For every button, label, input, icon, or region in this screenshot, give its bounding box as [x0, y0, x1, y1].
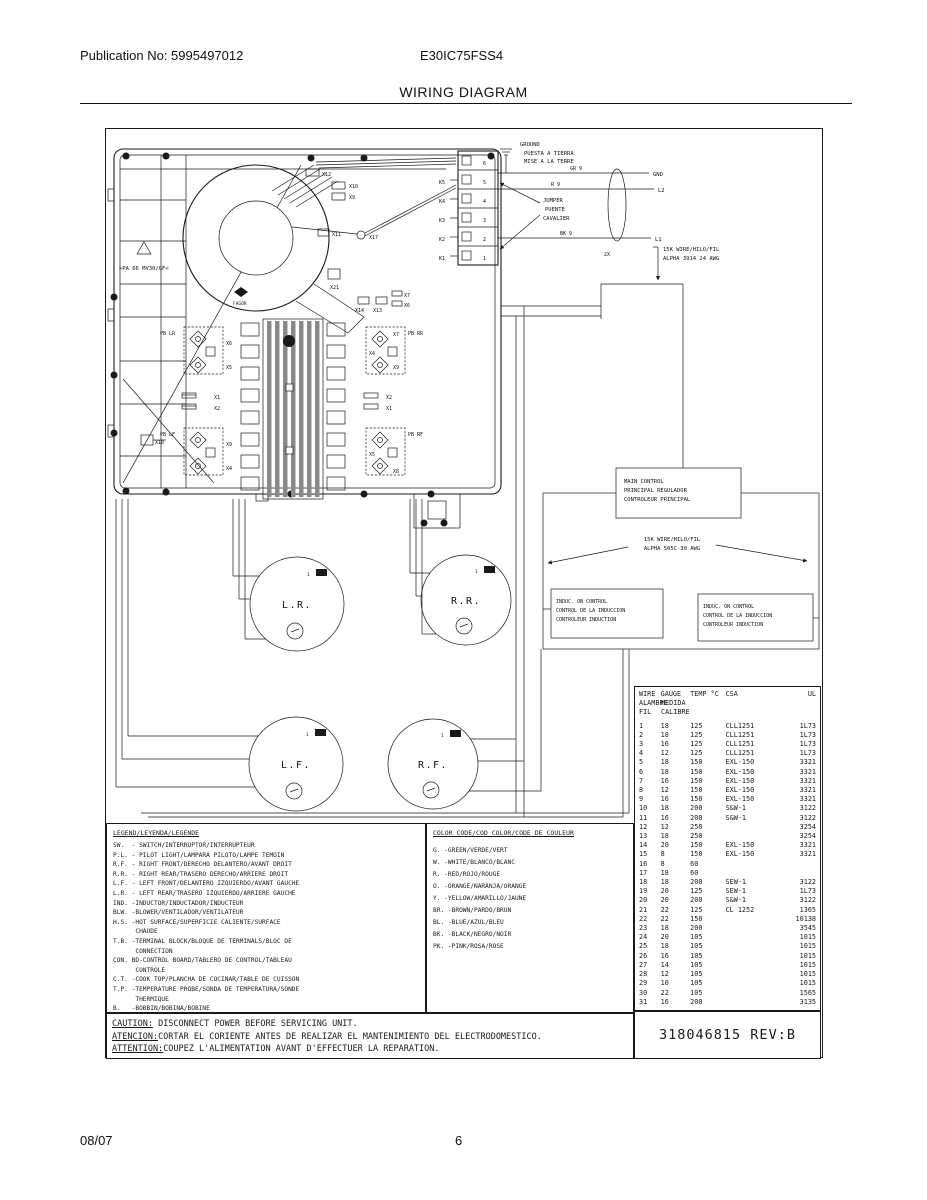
- x9-label: X9: [349, 195, 355, 201]
- cell-csa: [726, 924, 777, 933]
- burner-rr-mark: 1: [475, 569, 478, 575]
- wire-note-top-1: 15K WIRE/HILO/FIL: [663, 247, 720, 253]
- col-temp: TEMP °C: [690, 690, 725, 699]
- color-code-title: COLOR CODE/COD COLOR/CODE DE COULEUR: [433, 829, 627, 837]
- cell-ul: 3545: [777, 924, 816, 933]
- cell-ul: 3122: [777, 896, 816, 905]
- wire-note-mid-2: ALPHA 505C-30 AWG: [644, 546, 700, 552]
- table-row: 16 8 60: [639, 860, 816, 869]
- cell-temp: 125: [690, 722, 725, 731]
- pb-rf-label: PB RF: [408, 432, 423, 438]
- cell-gauge: 18: [661, 924, 691, 933]
- cell-temp: 150: [690, 795, 725, 804]
- cell-temp: 250: [690, 823, 725, 832]
- main-control-line1: MAIN CONTROL: [624, 479, 664, 485]
- cell-csa: S&W-1: [726, 896, 777, 905]
- terminal-2: 2: [483, 237, 486, 243]
- table-row: 19 20 125 SEW-1 1L73: [639, 887, 816, 896]
- terminal-block: [450, 151, 498, 265]
- table-row: 24 20 105 1015: [639, 933, 816, 942]
- cell-wire: 5: [639, 758, 661, 767]
- cell-csa: EXL-150: [726, 768, 777, 777]
- cell-ul: 1015: [777, 979, 816, 988]
- col-gauge-es: MEDIDA: [661, 699, 691, 708]
- caution-box: CAUTION: DISCONNECT POWER BEFORE SERVICI…: [106, 1013, 634, 1059]
- cell-gauge: 16: [661, 740, 691, 749]
- cell-gauge: 16: [661, 814, 691, 823]
- cell-csa: [726, 823, 777, 832]
- x9-pb-label: X9: [226, 442, 232, 448]
- main-control-line2: PRINCIPAL REGULADOR: [624, 488, 688, 494]
- induc-right-line3: CONTROLEUR INDUCTION: [703, 622, 763, 628]
- table-row: 26 16 105 1015: [639, 952, 816, 961]
- cell-gauge: 18: [661, 768, 691, 777]
- l1-label: L1: [655, 237, 662, 243]
- legend-line: CONTROLE: [113, 966, 419, 976]
- induc-right-line2: CONTROL DE LA INDUCCION: [703, 613, 772, 619]
- cell-gauge: 12: [661, 823, 691, 832]
- cell-csa: EXL-150: [726, 786, 777, 795]
- cell-ul: 1015: [777, 942, 816, 951]
- cell-wire: 9: [639, 795, 661, 804]
- cell-ul: 3321: [777, 850, 816, 859]
- cell-wire: 3: [639, 740, 661, 749]
- legend-line: IND. -INDUCTOR/INDUCTADOR/INDUCTEUR: [113, 899, 419, 909]
- legend-line: P.L. - PILOT LIGHT/LAMPARA PILOTO/LAMPE …: [113, 851, 419, 861]
- cell-wire: 18: [639, 878, 661, 887]
- cell-ul: 1015: [777, 970, 816, 979]
- cell-wire: 25: [639, 942, 661, 951]
- k5-label: K5: [439, 180, 445, 186]
- burner-lr-mark: 1: [307, 572, 310, 578]
- terminal-4: 4: [483, 199, 486, 205]
- k1-label: K1: [439, 256, 445, 262]
- table-body: 1 18 125 CLL1251 1L73 2 18 125 CLL1251 1…: [639, 722, 816, 1007]
- diagram-frame: >PA 66 MV30/GF< FAGOR: [105, 128, 823, 1058]
- table-row: 12 12 250 3254: [639, 823, 816, 832]
- cell-temp: 105: [690, 979, 725, 988]
- col-wire-es: ALAMBRE: [639, 699, 661, 708]
- cell-gauge: 20: [661, 887, 691, 896]
- cell-csa: [726, 970, 777, 979]
- cell-ul: 10138: [777, 915, 816, 924]
- cell-gauge: 8: [661, 860, 691, 869]
- x2-right-label: X2: [386, 395, 392, 401]
- caution-label: CAUTION:: [112, 1019, 153, 1029]
- cell-wire: 24: [639, 933, 661, 942]
- x5-pb2-label: X5: [369, 452, 375, 458]
- wire-note-top: 15K WIRE/HILO/FIL ALPHA 3914 24 AWG: [653, 247, 720, 280]
- induc-left-line2: CONTROL DE LA INDUCCION: [556, 608, 625, 614]
- cell-csa: [726, 832, 777, 841]
- cell-csa: S&W-1: [726, 814, 777, 823]
- table-row: 23 18 200 3545: [639, 924, 816, 933]
- cell-temp: 125: [690, 749, 725, 758]
- color-code-box: COLOR CODE/COD COLOR/CODE DE COULEUR G. …: [426, 823, 634, 1013]
- cell-gauge: 18: [661, 758, 691, 767]
- table-row: 10 18 200 S&W-1 3122: [639, 804, 816, 813]
- cell-ul: 1015: [777, 961, 816, 970]
- cell-gauge: 10: [661, 979, 691, 988]
- legend-line: THERMIQUE: [113, 995, 419, 1005]
- cell-gauge: 20: [661, 896, 691, 905]
- ground-label-es: PUESTA A TIERRA: [524, 151, 574, 157]
- table-row: 17 18 60: [639, 869, 816, 878]
- x2-left-label: X2: [214, 406, 220, 412]
- table-row: 2 18 125 CLL1251 1L73: [639, 731, 816, 740]
- x7-pb-label: X7: [393, 332, 399, 338]
- cell-ul: 3321: [777, 777, 816, 786]
- table-header-row-2: ALAMBRE MEDIDA: [639, 699, 816, 708]
- cell-ul: [777, 869, 816, 878]
- induction-control-right-box: INDUC. ON CONTROL CONTROL DE LA INDUCCIO…: [698, 594, 813, 641]
- cell-ul: 1L73: [777, 722, 816, 731]
- cell-ul: [777, 860, 816, 869]
- model-number: E30IC75FSS4: [420, 48, 503, 63]
- cell-ul: 3321: [777, 795, 816, 804]
- cell-gauge: 16: [661, 998, 691, 1007]
- title-rule: [80, 103, 852, 104]
- x21-label: X21: [330, 285, 339, 291]
- cell-temp: 105: [690, 942, 725, 951]
- recycle-triangle-icon: [137, 242, 151, 254]
- cell-csa: [726, 933, 777, 942]
- color-code-line: R. -RED/ROJO/ROUGE: [433, 869, 627, 881]
- k4-label: K4: [439, 199, 445, 205]
- cooktop-assembly: >PA 66 MV30/GF< FAGOR: [108, 149, 501, 528]
- caution-line: ATENCION:CORTAR EL CORIENTE ANTES DE REA…: [112, 1031, 628, 1044]
- table-row: 29 10 105 1015: [639, 979, 816, 988]
- x13-label: X13: [373, 308, 382, 314]
- ground-label-fr: MISE A LA TERRE: [524, 159, 574, 165]
- caution-line: ATTENTION:COUPEZ L'ALIMENTATION AVANT D'…: [112, 1043, 628, 1056]
- main-control-box: MAIN CONTROL PRINCIPAL REGULADOR CONTROL…: [616, 468, 741, 518]
- cell-temp: 150: [690, 786, 725, 795]
- table-row: 21 22 125 CL 1252 1365: [639, 906, 816, 915]
- col-ul: UL: [777, 690, 816, 699]
- cell-csa: [726, 961, 777, 970]
- caution-lines: CAUTION: DISCONNECT POWER BEFORE SERVICI…: [112, 1018, 628, 1056]
- cell-wire: 4: [639, 749, 661, 758]
- x6-pb-label: X6: [226, 341, 232, 347]
- cell-ul: 3321: [777, 841, 816, 850]
- pb-rr-label: PB RR: [408, 331, 424, 337]
- col-gauge: GAUGE: [661, 690, 691, 699]
- x10-label: X10: [349, 184, 358, 190]
- burner-lf-label: L.F.: [281, 760, 311, 771]
- cell-ul: 3321: [777, 758, 816, 767]
- color-code-line: W. -WHITE/BLANCO/BLANC: [433, 857, 627, 869]
- cell-csa: SEW-1: [726, 887, 777, 896]
- cell-temp: 200: [690, 924, 725, 933]
- cell-wire: 26: [639, 952, 661, 961]
- x8-pb-label: X8: [393, 469, 399, 475]
- cell-csa: EXL-150: [726, 841, 777, 850]
- cell-ul: 1L73: [777, 749, 816, 758]
- cell-wire: 11: [639, 814, 661, 823]
- table-row: 25 18 105 1015: [639, 942, 816, 951]
- x12-label: X12: [322, 172, 331, 178]
- burner-right-rear: R.R. 1: [421, 555, 511, 645]
- cell-wire: 12: [639, 823, 661, 832]
- cell-csa: CLL1251: [726, 749, 777, 758]
- cell-temp: 150: [690, 850, 725, 859]
- color-code-line: Y. -YELLOW/AMARILLO/JAUNE: [433, 893, 627, 905]
- table-row: 22 22 150 10138: [639, 915, 816, 924]
- burner-lf-mark: 1: [306, 732, 309, 738]
- footer-date: 08/07: [80, 1133, 113, 1148]
- cell-temp: 125: [690, 906, 725, 915]
- cell-temp: 150: [690, 777, 725, 786]
- cell-wire: 8: [639, 786, 661, 795]
- cell-temp: 125: [690, 740, 725, 749]
- table-row: 6 18 150 EXL-150 3321: [639, 768, 816, 777]
- cell-temp: 200: [690, 814, 725, 823]
- x5-pb-label: X5: [226, 365, 232, 371]
- cell-wire: 15: [639, 850, 661, 859]
- ground-label-en: GROUND: [520, 142, 540, 148]
- k3-label: K3: [439, 218, 445, 224]
- x10-left-label: X10: [155, 440, 164, 446]
- table-row: 31 16 200 3135: [639, 998, 816, 1007]
- caution-label: ATTENTION:: [112, 1044, 163, 1054]
- terminal-3: 3: [483, 218, 486, 224]
- cell-gauge: 18: [661, 731, 691, 740]
- main-control-line3: CONTROLEUR PRINCIPAL: [624, 497, 691, 503]
- cell-gauge: 20: [661, 933, 691, 942]
- cell-csa: CLL1251: [726, 731, 777, 740]
- table-row: 9 16 150 EXL-150 3321: [639, 795, 816, 804]
- cell-wire: 17: [639, 869, 661, 878]
- cell-gauge: 20: [661, 841, 691, 850]
- col-wire-fr: FIL: [639, 708, 661, 717]
- table-row: 28 12 105 1015: [639, 970, 816, 979]
- cell-gauge: 18: [661, 942, 691, 951]
- pb-lf-label: PB LF: [160, 432, 175, 438]
- cell-gauge: 12: [661, 970, 691, 979]
- cell-csa: EXL-150: [726, 850, 777, 859]
- cell-ul: 3122: [777, 804, 816, 813]
- color-code-lines: G. -GREEN/VERDE/VERTW. -WHITE/BLANCO/BLA…: [433, 845, 627, 953]
- cell-temp: 150: [690, 768, 725, 777]
- cell-ul: 1365: [777, 906, 816, 915]
- induc-right-line1: INDUC. ON CONTROL: [703, 604, 754, 610]
- cell-gauge: 18: [661, 878, 691, 887]
- cell-gauge: 18: [661, 832, 691, 841]
- cell-csa: CL 1252: [726, 906, 777, 915]
- x9-pb2-label: X9: [393, 365, 399, 371]
- caution-label: ATENCION:: [112, 1032, 158, 1042]
- legend-line: SW. - SWITCH/INTERRUPTOR/INTERRUPTEUR: [113, 841, 419, 851]
- cell-ul: 3321: [777, 768, 816, 777]
- caution-line: CAUTION: DISCONNECT POWER BEFORE SERVICI…: [112, 1018, 628, 1031]
- cell-temp: 150: [690, 915, 725, 924]
- page-title: WIRING DIAGRAM: [0, 84, 927, 100]
- legend-line: R.R. - RIGHT REAR/TRASERO DERECHO/ARRIER…: [113, 870, 419, 880]
- color-code-line: BK. -BLACK/NEGRO/NOIR: [433, 929, 627, 941]
- table-row: 3 16 125 CLL1251 1L73: [639, 740, 816, 749]
- legend-box: LEGEND/LEYENDA/LEGENDE SW. - SWITCH/INTE…: [106, 823, 426, 1013]
- induc-left-line3: CONTROLEUR INDUCTION: [556, 617, 616, 623]
- brand-label: FAGOR: [233, 301, 247, 307]
- part-number-box: 318046815 REV:B: [634, 1011, 821, 1059]
- caution-text: DISCONNECT POWER BEFORE SERVICING UNIT.: [153, 1019, 358, 1029]
- cell-wire: 6: [639, 768, 661, 777]
- color-code-line: G. -GREEN/VERDE/VERT: [433, 845, 627, 857]
- burner-left-rear: L.R. 1: [250, 557, 344, 651]
- manual-page: Publication No: 5995497012 E30IC75FSS4 W…: [0, 0, 927, 1200]
- cell-temp: 60: [690, 869, 725, 878]
- cell-gauge: 18: [661, 722, 691, 731]
- legend-lines: SW. - SWITCH/INTERRUPTOR/INTERRUPTEURP.L…: [113, 841, 419, 1014]
- heatsink: [263, 319, 323, 499]
- cell-wire: 16: [639, 860, 661, 869]
- cell-gauge: 22: [661, 989, 691, 998]
- table-row: 13 18 250 3254: [639, 832, 816, 841]
- table-header-row-1: WIRE GAUGE TEMP °C CSA UL: [639, 690, 816, 699]
- cell-gauge: 22: [661, 915, 691, 924]
- burner-right-front: R.F. 1: [388, 719, 478, 809]
- blower-fan: [183, 165, 364, 333]
- table-row: 11 16 200 S&W-1 3122: [639, 814, 816, 823]
- cell-csa: EXL-150: [726, 758, 777, 767]
- cell-ul: 3254: [777, 823, 816, 832]
- col-gauge-fr: CALIBRE: [661, 708, 691, 717]
- legend-line: T.P. -TEMPERATURE PROBE/SONDA DE TEMPERA…: [113, 985, 419, 995]
- x11-label: X11: [332, 232, 341, 238]
- terminal-1: 1: [483, 256, 486, 262]
- cell-temp: 105: [690, 970, 725, 979]
- cell-csa: [726, 989, 777, 998]
- table-row: 18 18 200 SEW-1 3122: [639, 878, 816, 887]
- wire-gr9-label: GR 9: [570, 166, 582, 172]
- caution-text: COUPEZ L'ALIMENTATION AVANT D'EFFECTUER …: [163, 1044, 439, 1054]
- cell-ul: 3321: [777, 786, 816, 795]
- gnd-label: GND: [653, 172, 663, 178]
- cell-ul: 3254: [777, 832, 816, 841]
- cell-wire: 28: [639, 970, 661, 979]
- cell-wire: 23: [639, 924, 661, 933]
- burner-left-front: L.F. 1: [249, 717, 343, 811]
- x4-pb2-label: X4: [369, 351, 375, 357]
- publication-number: Publication No: 5995497012: [80, 48, 243, 63]
- l2-label: L2: [658, 188, 665, 194]
- cell-gauge: 16: [661, 777, 691, 786]
- table-row: 7 16 150 EXL-150 3321: [639, 777, 816, 786]
- x4-pb-label: X4: [226, 466, 232, 472]
- terminal-5: 5: [483, 180, 486, 186]
- cell-wire: 20: [639, 896, 661, 905]
- table-header-row-3: FIL CALIBRE: [639, 708, 816, 717]
- part-number: 318046815 REV:B: [659, 1027, 796, 1043]
- terminal-6: 6: [483, 161, 486, 167]
- cell-ul: 1015: [777, 952, 816, 961]
- cell-temp: 125: [690, 731, 725, 740]
- footer-page-number: 6: [455, 1133, 462, 1148]
- induction-control-left-box: INDUC. ON CONTROL CONTROL DE LA INDUCCIO…: [551, 589, 663, 638]
- col-wire: WIRE: [639, 690, 661, 699]
- cell-wire: 13: [639, 832, 661, 841]
- cell-ul: 3135: [777, 998, 816, 1007]
- cell-temp: 105: [690, 961, 725, 970]
- material-label: >PA 66 MV30/GF<: [119, 266, 169, 272]
- wire-note-top-2: ALPHA 3914 24 AWG: [663, 256, 719, 262]
- legend-line: L.R. - LEFT REAR/TRASERO IZQUIERDO/ARRIE…: [113, 889, 419, 899]
- cell-temp: 200: [690, 804, 725, 813]
- jumper-label-fr: CAVALIER: [543, 216, 570, 222]
- cell-csa: EXL-150: [726, 795, 777, 804]
- cell-csa: CLL1251: [726, 740, 777, 749]
- cell-ul: 1L73: [777, 887, 816, 896]
- color-code-line: O. -ORANGE/NARANJA/ORANGE: [433, 881, 627, 893]
- x1-left-label: X1: [214, 395, 220, 401]
- cell-gauge: 12: [661, 749, 691, 758]
- color-code-line: PK. -PINK/ROSA/ROSE: [433, 941, 627, 953]
- burner-rr-label: R.R.: [451, 596, 481, 607]
- jumper-label-es: PUENTE: [545, 207, 565, 213]
- cell-temp: 200: [690, 878, 725, 887]
- cell-wire: 29: [639, 979, 661, 988]
- cell-ul: 1L73: [777, 740, 816, 749]
- cell-wire: 22: [639, 915, 661, 924]
- legend-line: R.F. - RIGHT FRONT/DERECHO DELANTERO/AVA…: [113, 860, 419, 870]
- cell-wire: 21: [639, 906, 661, 915]
- wire-gauge-table: WIRE GAUGE TEMP °C CSA UL ALAMBRE MEDIDA…: [634, 686, 821, 1011]
- table-row: 5 18 150 EXL-150 3321: [639, 758, 816, 767]
- jumper-label-en: JUMPER: [543, 198, 564, 204]
- x17-label: X17: [369, 235, 378, 241]
- legend-line: CHAUDE: [113, 927, 419, 937]
- legend-line: BLW. -BLOWER/VENTILADOR/VENTILATEUR: [113, 908, 419, 918]
- table-row: 8 12 150 EXL-150 3321: [639, 786, 816, 795]
- cell-temp: 200: [690, 896, 725, 905]
- cell-gauge: 8: [661, 850, 691, 859]
- color-code-line: BL. -BLUE/AZUL/BLEU: [433, 917, 627, 929]
- cell-wire: 31: [639, 998, 661, 1007]
- table-row: 20 20 200 S&W-1 3122: [639, 896, 816, 905]
- legend-line: H.S. -HOT SURFACE/SUPERFICIE CALIENTE/SU…: [113, 918, 419, 928]
- cell-ul: 1015: [777, 933, 816, 942]
- brand-logo-icon: [234, 287, 248, 297]
- x6-label: X6: [404, 303, 410, 309]
- cell-temp: 150: [690, 841, 725, 850]
- cell-gauge: 14: [661, 961, 691, 970]
- burner-rf-label: R.F.: [418, 760, 448, 771]
- cell-wire: 14: [639, 841, 661, 850]
- cable-2x-label: 2X: [604, 252, 610, 258]
- cell-ul: 3122: [777, 878, 816, 887]
- burner-lr-label: L.R.: [282, 600, 312, 611]
- cell-temp: 150: [690, 758, 725, 767]
- burner-rf-mark: 1: [441, 733, 444, 739]
- cell-gauge: 16: [661, 795, 691, 804]
- wire-bk9-label: BK 9: [560, 231, 572, 237]
- caution-text: CORTAR EL CORIENTE ANTES DE REALIZAR EL …: [158, 1032, 542, 1042]
- x14-label: X14: [355, 308, 364, 314]
- wire-r9-label: R 9: [551, 182, 560, 188]
- cell-wire: 19: [639, 887, 661, 896]
- cell-ul: 1L73: [777, 731, 816, 740]
- k2-label: K2: [439, 237, 445, 243]
- cell-csa: EXL-150: [726, 777, 777, 786]
- cell-wire: 1: [639, 722, 661, 731]
- legend-line: CON. BD-CONTROL BOARD/TABLERO DE CONTROL…: [113, 956, 419, 966]
- table-row: 14 20 150 EXL-150 3321: [639, 841, 816, 850]
- cell-csa: [726, 915, 777, 924]
- cell-wire: 27: [639, 961, 661, 970]
- cell-gauge: 16: [661, 952, 691, 961]
- legend-line: T.B. -TERMINAL BLOCK/BLOQUE DE TERMINALS…: [113, 937, 419, 947]
